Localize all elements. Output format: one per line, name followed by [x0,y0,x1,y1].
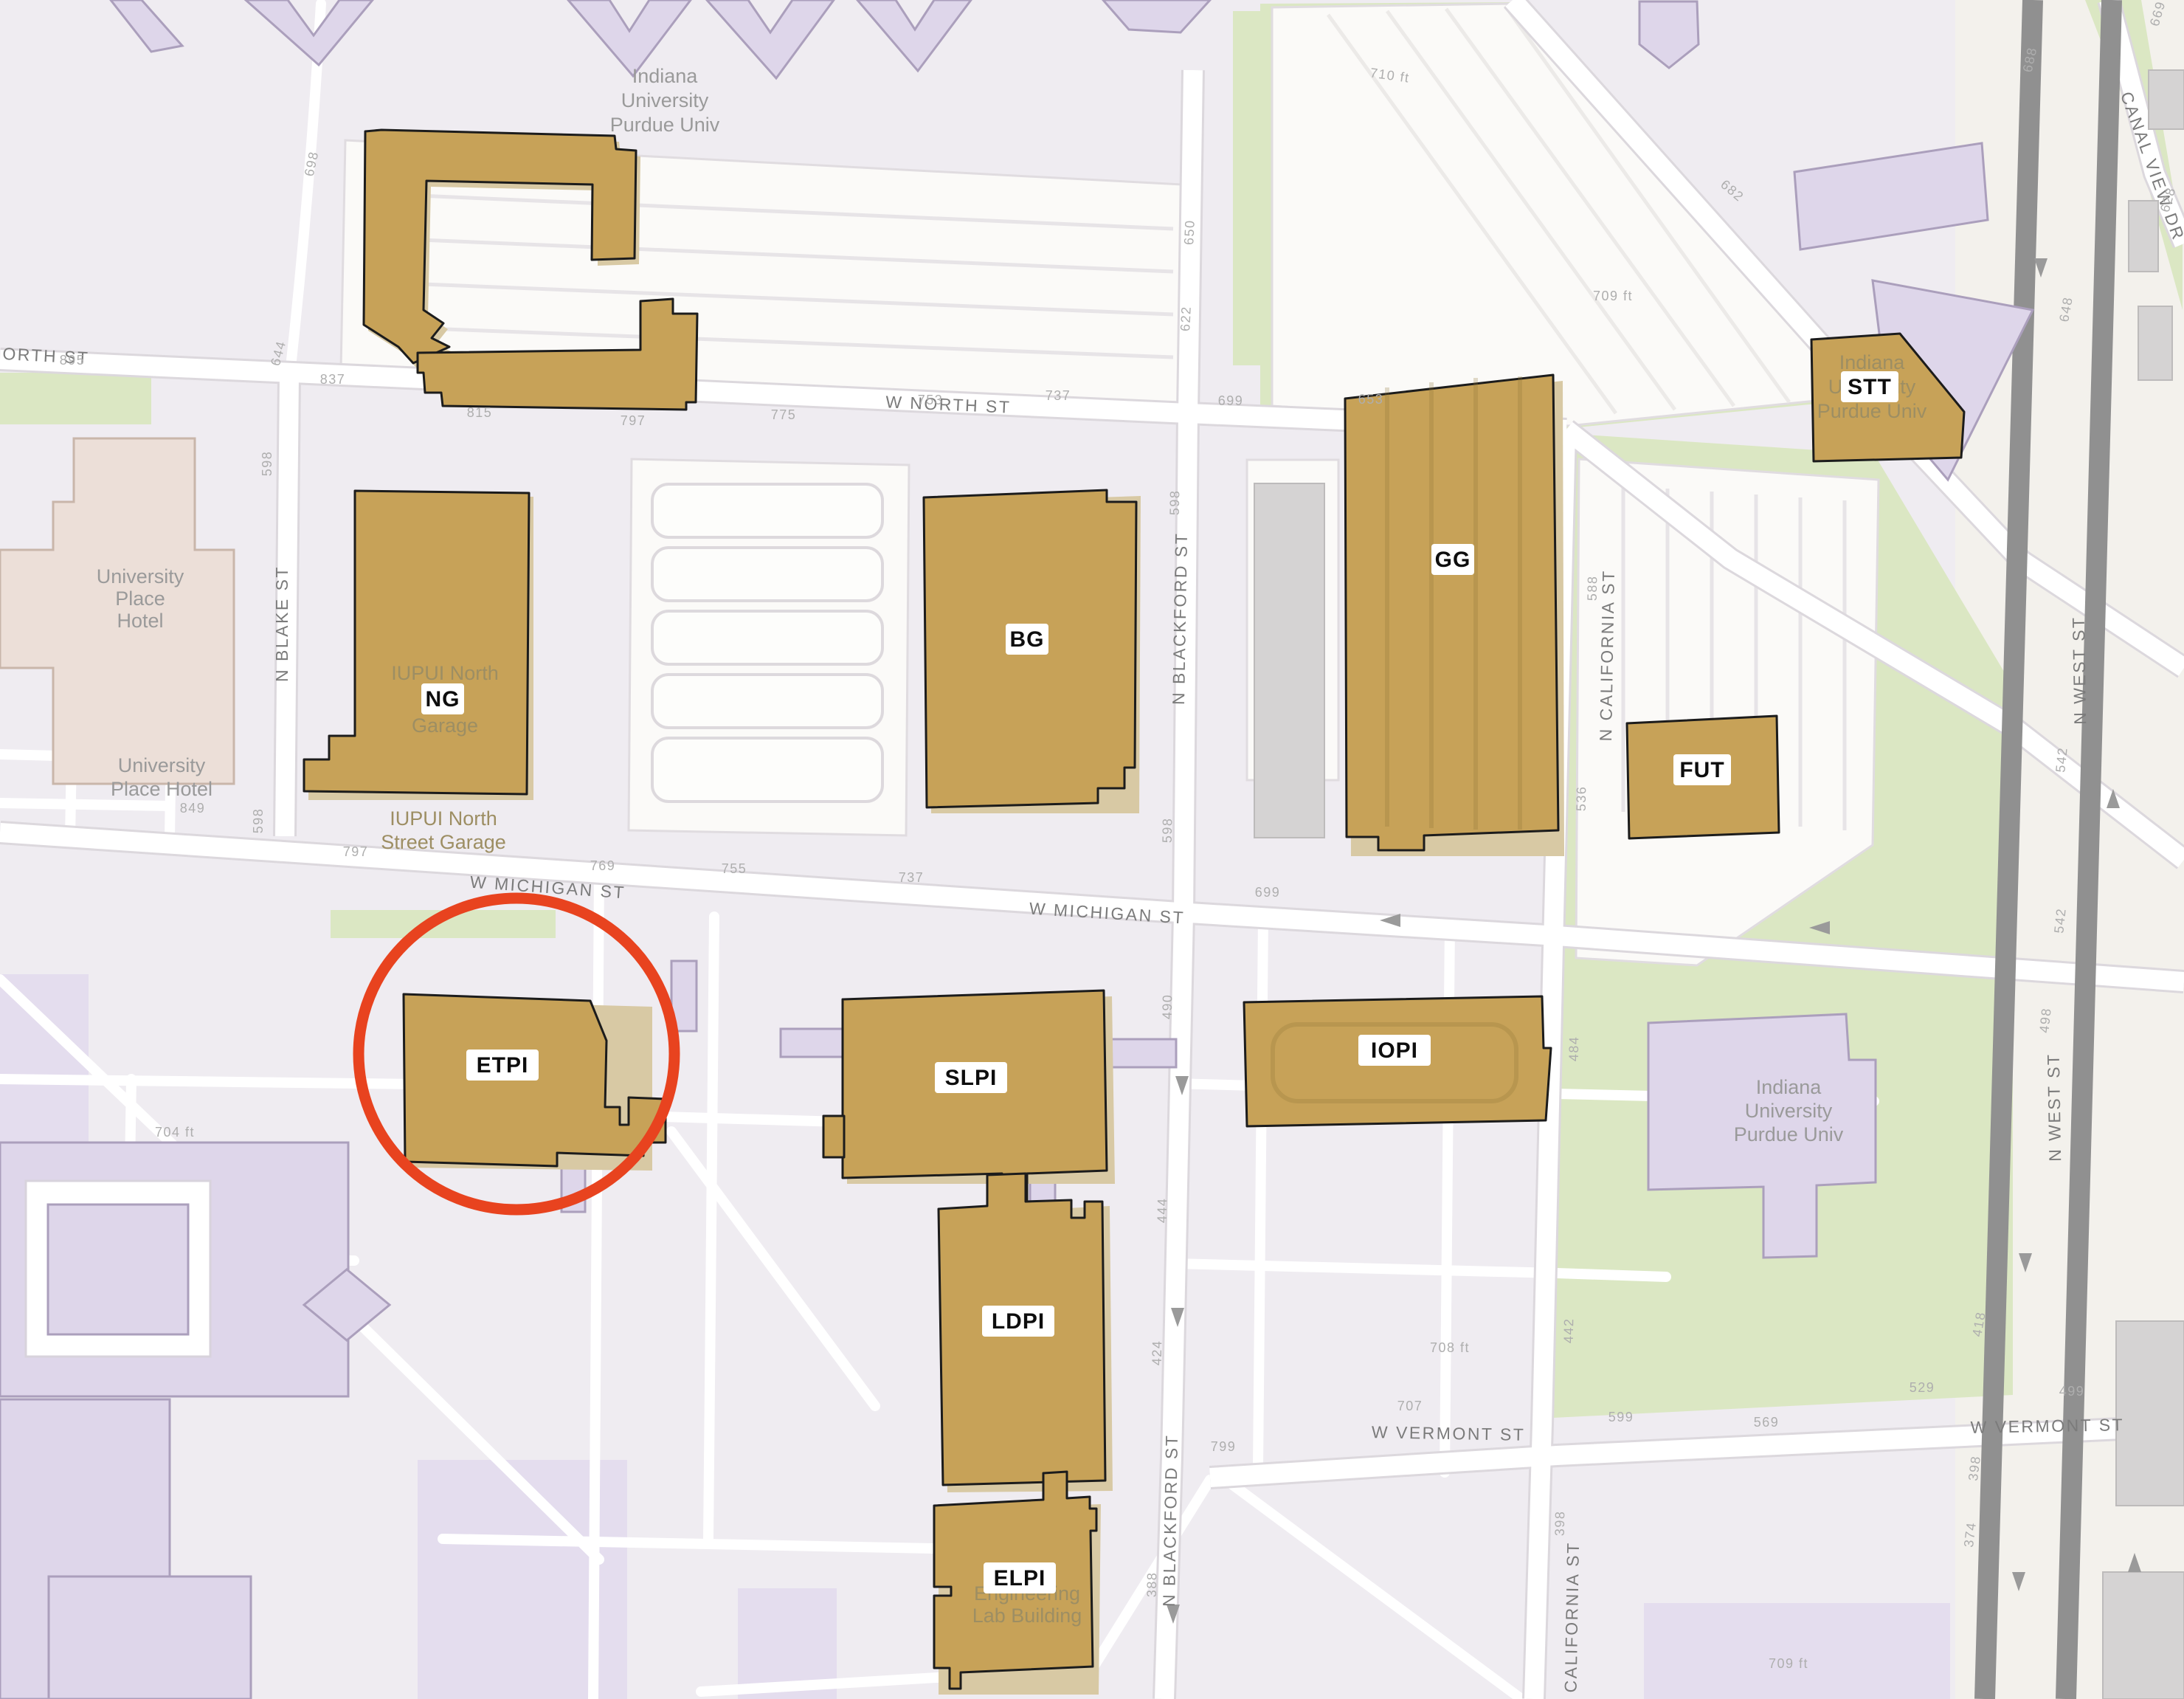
housing-block [49,1576,251,1699]
address-number-498: 498 [2036,1007,2054,1033]
building-SLPI-annex[interactable] [823,1116,844,1157]
street-label-w-vermont-st: W VERMONT ST [1372,1422,1526,1444]
address-number-753: 753 [918,393,944,407]
address-number-737: 737 [899,870,925,885]
gray-building-center [1254,483,1324,838]
address-number-653: 653 [1358,392,1384,407]
address-number-837: 837 [320,372,346,387]
building-GG[interactable] [1345,375,1558,850]
building-label-LDPI: LDPI [992,1309,1045,1334]
address-number-709-ft: 709 ft [1769,1656,1808,1671]
address-number-769: 769 [590,858,616,873]
address-number-598: 598 [251,808,266,834]
address-number-650: 650 [1181,219,1198,246]
street-label-n-california-st: N CALIFORNIA ST [1561,1541,1583,1699]
address-number-622: 622 [1178,306,1194,332]
address-number-499: 499 [2059,1384,2085,1399]
building-label-ELPI: ELPI [994,1566,1046,1591]
iupui-north-street-garage-label: Street Garage [381,831,506,853]
street-label-n-blackford-st: N BLACKFORD ST [1169,531,1191,705]
address-number-895: 895 [60,353,86,368]
iupui-campus-label-right: Indiana [1756,1076,1822,1098]
address-number-388: 388 [1144,1571,1160,1597]
university-place-hotel-label-2: Place Hotel [111,778,212,800]
address-number-598: 598 [1167,489,1183,515]
address-number-797: 797 [621,413,646,428]
street-label-n-blackford-st: N BLACKFORD ST [1159,1433,1181,1607]
street-label-n-west-st: N WEST ST [2044,1052,2065,1162]
iupui-campus-label-right: Purdue Univ [1734,1123,1844,1145]
building-label-GG: GG [1435,548,1471,572]
engineering-lab-building-label: Lab Building [972,1605,1082,1627]
address-number-588: 588 [1585,575,1600,601]
stt-sub-label: Indiana [1839,351,1906,373]
address-number-704-ft: 704 ft [155,1125,195,1140]
address-number-490: 490 [1160,993,1175,1019]
iupui-campus-label-top: Purdue Univ [610,114,720,136]
street-label-n-west-st: N WEST ST [2069,616,2090,725]
iupui-campus-label-right: University [1745,1100,1833,1122]
address-number-849: 849 [180,801,206,816]
map-canvas[interactable]: IndianaUniversityPurdue UnivIndianaUnive… [0,0,2184,1699]
building-label-SLPI: SLPI [945,1066,998,1090]
address-number-707: 707 [1397,1399,1423,1413]
address-number-398: 398 [1966,1455,1983,1482]
address-number-737: 737 [1046,388,1071,403]
address-number-442: 442 [1561,1317,1577,1343]
university-place-hotel-label: Place [115,587,165,610]
building-label-FUT: FUT [1679,758,1724,782]
building-label-NG: NG [426,687,460,711]
iupui-north-garage-label-b: Garage [412,714,478,737]
address-number-799: 799 [1211,1439,1237,1454]
address-number-542: 542 [2053,746,2070,773]
university-place-hotel-label: Hotel [117,610,163,632]
university-place-hotel-label: University [97,565,184,587]
address-number-529: 529 [1910,1380,1935,1395]
address-number-374: 374 [1961,1521,1979,1548]
building-label-BG: BG [1010,627,1045,652]
address-number-699: 699 [1255,885,1281,900]
address-number-598: 598 [260,451,274,477]
iupui-campus-label-top: University [621,89,709,111]
street-label-w-vermont-st: W VERMONT ST [1970,1415,2124,1437]
address-number-536: 536 [1574,785,1589,811]
address-number-797: 797 [343,844,369,859]
address-number-775: 775 [771,407,797,422]
address-number-484: 484 [1566,1035,1582,1061]
address-number-755: 755 [722,861,747,876]
building-label-STT: STT [1848,375,1892,399]
address-number-444: 444 [1155,1197,1170,1223]
iupui-north-garage-label: IUPUI North [391,662,499,684]
address-number-599: 599 [1608,1410,1634,1424]
address-number-815: 815 [467,405,493,420]
address-number-598: 598 [1160,817,1175,843]
address-number-708-ft: 708 ft [1430,1340,1470,1355]
street-label-n-blake-st: N BLAKE ST [272,565,291,682]
iupui-campus-label-top: Indiana [632,65,699,87]
iupui-north-street-garage-label: IUPUI North [390,807,497,830]
address-number-398: 398 [1552,1510,1568,1536]
building-label-ETPI: ETPI [477,1053,529,1078]
address-number-699: 699 [1218,393,1244,408]
university-place-hotel-label-2: University [118,754,206,776]
address-number-709-ft: 709 ft [1593,289,1633,303]
stt-sub-label: Purdue Univ [1817,400,1927,422]
address-number-542: 542 [2051,907,2069,934]
address-number-569: 569 [1754,1415,1780,1430]
campus-map[interactable]: IndianaUniversityPurdue UnivIndianaUnive… [0,0,2184,1699]
building-label-IOPI: IOPI [1371,1038,1418,1063]
address-number-424: 424 [1150,1340,1165,1365]
